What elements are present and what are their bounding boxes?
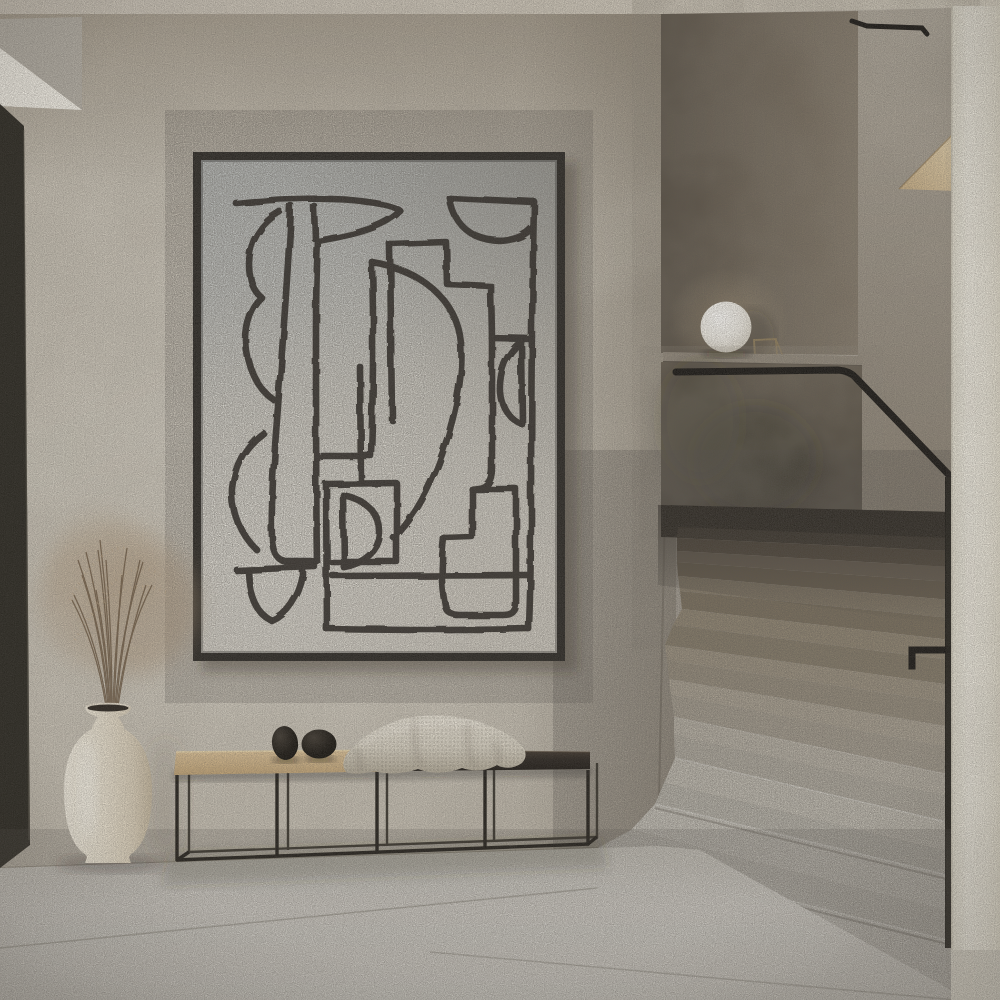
scene-canvas xyxy=(0,0,1000,1000)
hallway-scene xyxy=(0,0,1000,1000)
vignette xyxy=(0,0,1000,1000)
